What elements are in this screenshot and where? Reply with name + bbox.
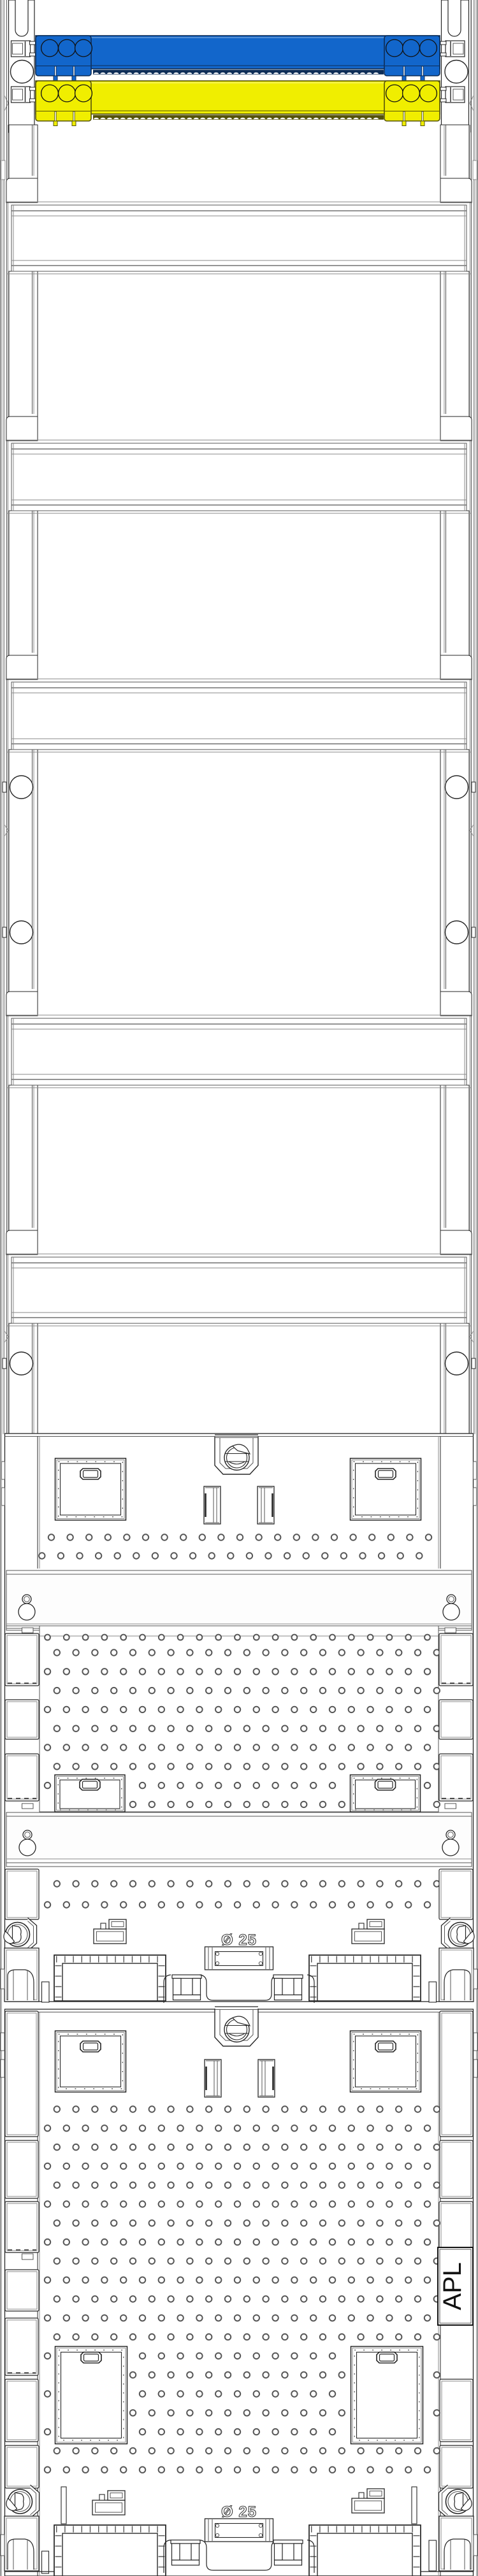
svg-text:Ø 25: Ø 25 (221, 2503, 257, 2521)
svg-text:Ø 25: Ø 25 (221, 1932, 257, 1949)
svg-text:APL: APL (438, 2262, 467, 2310)
